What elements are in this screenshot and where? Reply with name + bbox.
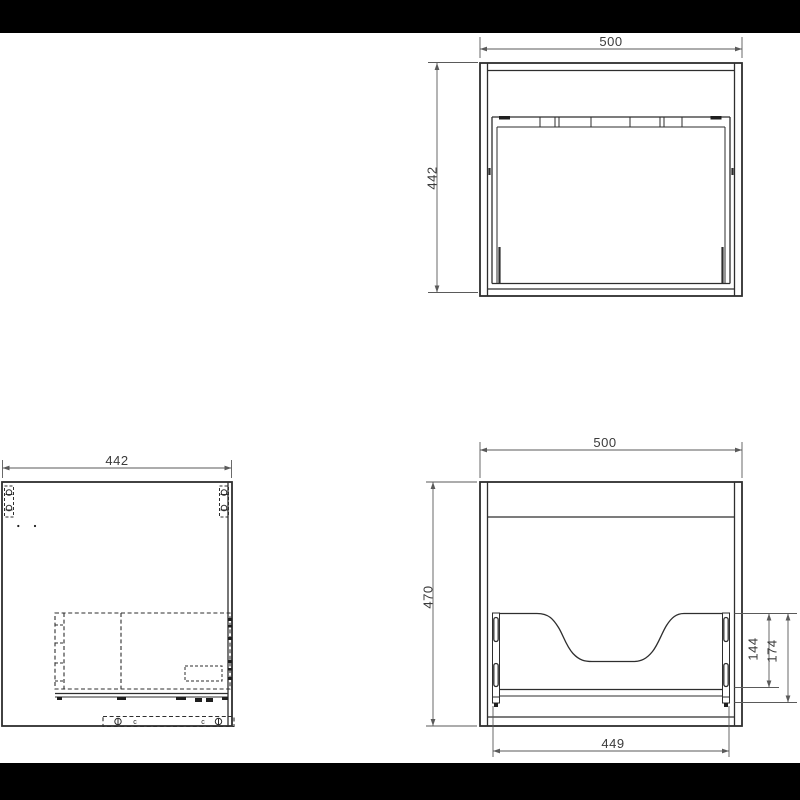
top-view-width-dimension: 500 [480, 34, 742, 58]
top-view-depth-dimension: 442 [425, 63, 479, 293]
fastener-mark-c-2: c [201, 719, 205, 726]
top-view-depth-label: 442 [425, 166, 440, 189]
top-view-outer-panel [480, 63, 742, 296]
side-view-depth-dimension: 442 [3, 453, 232, 478]
dowel-hole-mark-2 [34, 525, 36, 527]
recess-height-label: 144 [746, 637, 761, 660]
front-view: 500 470 144 174 [421, 435, 798, 757]
front-view-width-label: 500 [593, 435, 616, 450]
drawer-corner-bracket-left [499, 116, 510, 120]
inner-width-label: 449 [601, 736, 624, 751]
front-view-height-label: 470 [421, 585, 436, 608]
dowel-hole-mark-1 [17, 525, 19, 527]
side-panel-view: c c 442 [2, 453, 234, 727]
top-view-width-label: 500 [599, 34, 622, 49]
drawer-corner-bracket-right [711, 116, 722, 120]
drawing-canvas: 500 442 [0, 0, 800, 800]
front-view-height-dimension: 470 [421, 482, 478, 726]
fastener-mark-c-1: c [133, 719, 137, 726]
front-view-width-dimension: 500 [480, 435, 742, 478]
back-panel-height-dimension: 174 [735, 614, 798, 703]
back-panel-height-label: 174 [765, 639, 780, 662]
side-view-depth-label: 442 [105, 453, 128, 468]
top-view: 500 442 [425, 34, 743, 296]
technical-drawing-page: 500 442 [0, 0, 800, 800]
